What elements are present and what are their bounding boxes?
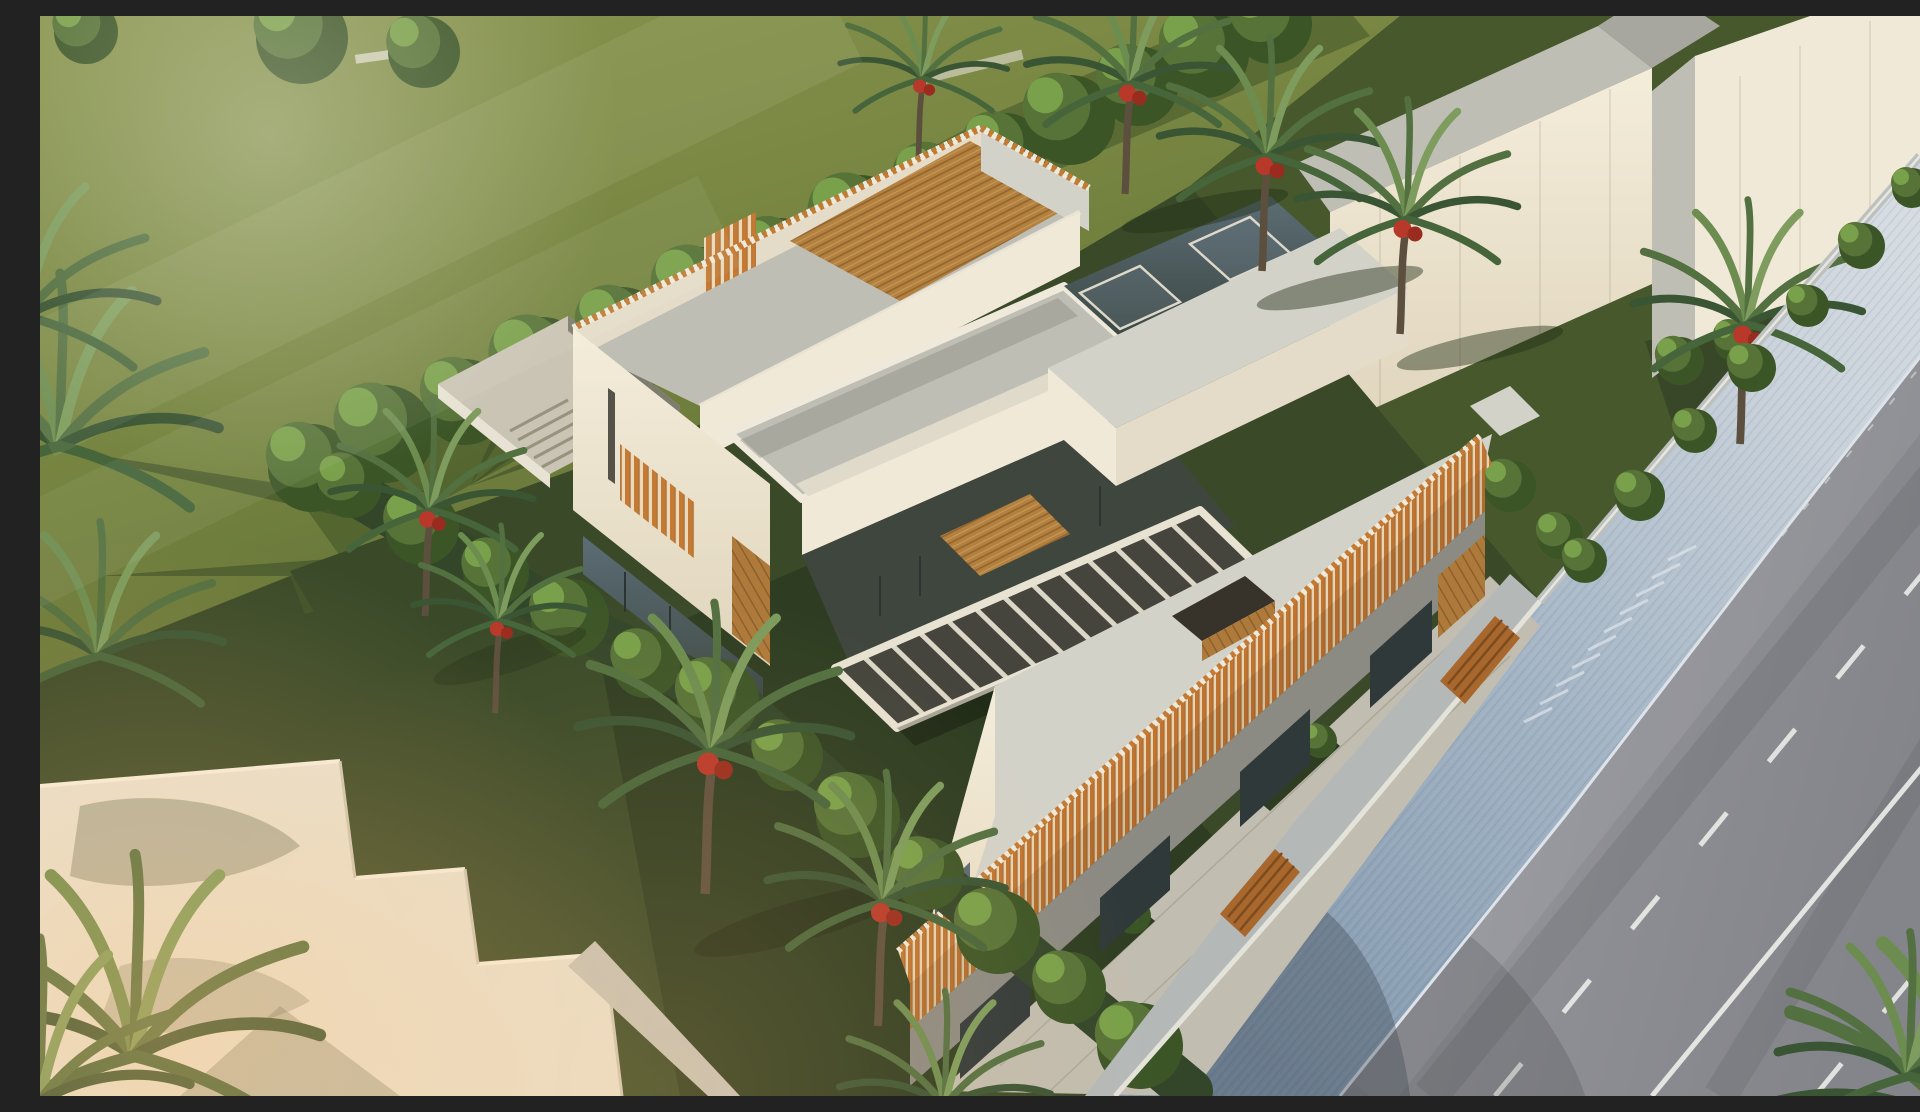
aerial-architectural-render	[40, 16, 1920, 1096]
render-canvas	[40, 16, 1920, 1096]
